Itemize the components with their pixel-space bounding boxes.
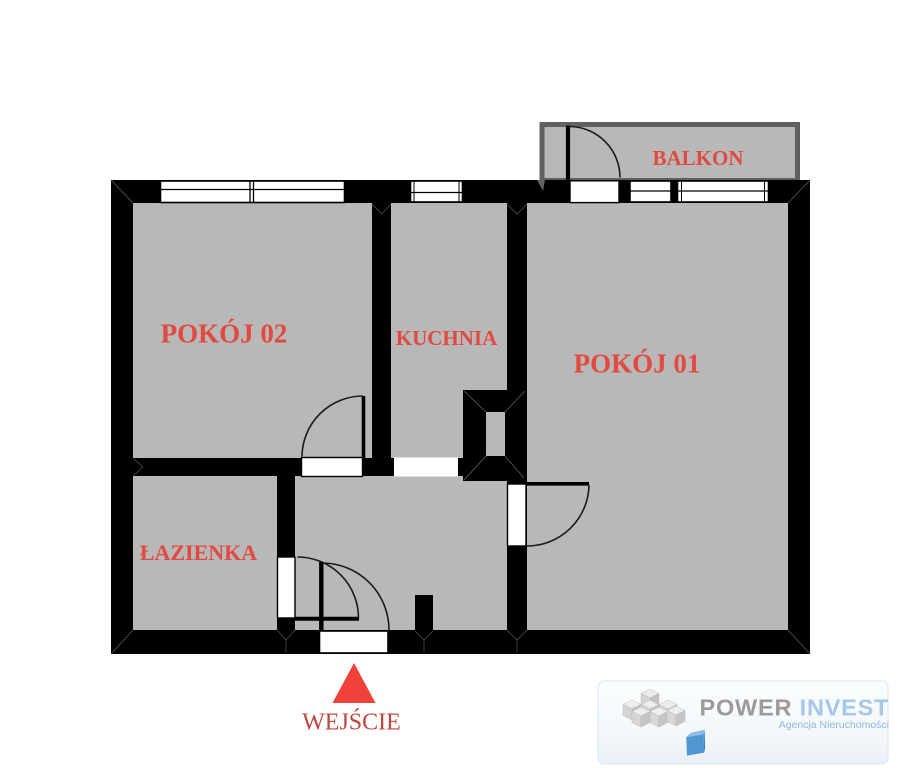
svg-text:WEJŚCIE: WEJŚCIE [302, 709, 401, 736]
svg-text:KUCHNIA: KUCHNIA [396, 326, 498, 350]
svg-text:BALKON: BALKON [652, 146, 743, 170]
svg-text:Agencja Nieruchomości: Agencja Nieruchomości [779, 719, 889, 731]
svg-text:POKÓJ 01: POKÓJ 01 [574, 349, 701, 379]
svg-text:ŁAZIENKA: ŁAZIENKA [140, 540, 257, 565]
svg-text:POWER INVEST: POWER INVEST [700, 694, 890, 720]
svg-text:POKÓJ 02: POKÓJ 02 [161, 319, 288, 349]
